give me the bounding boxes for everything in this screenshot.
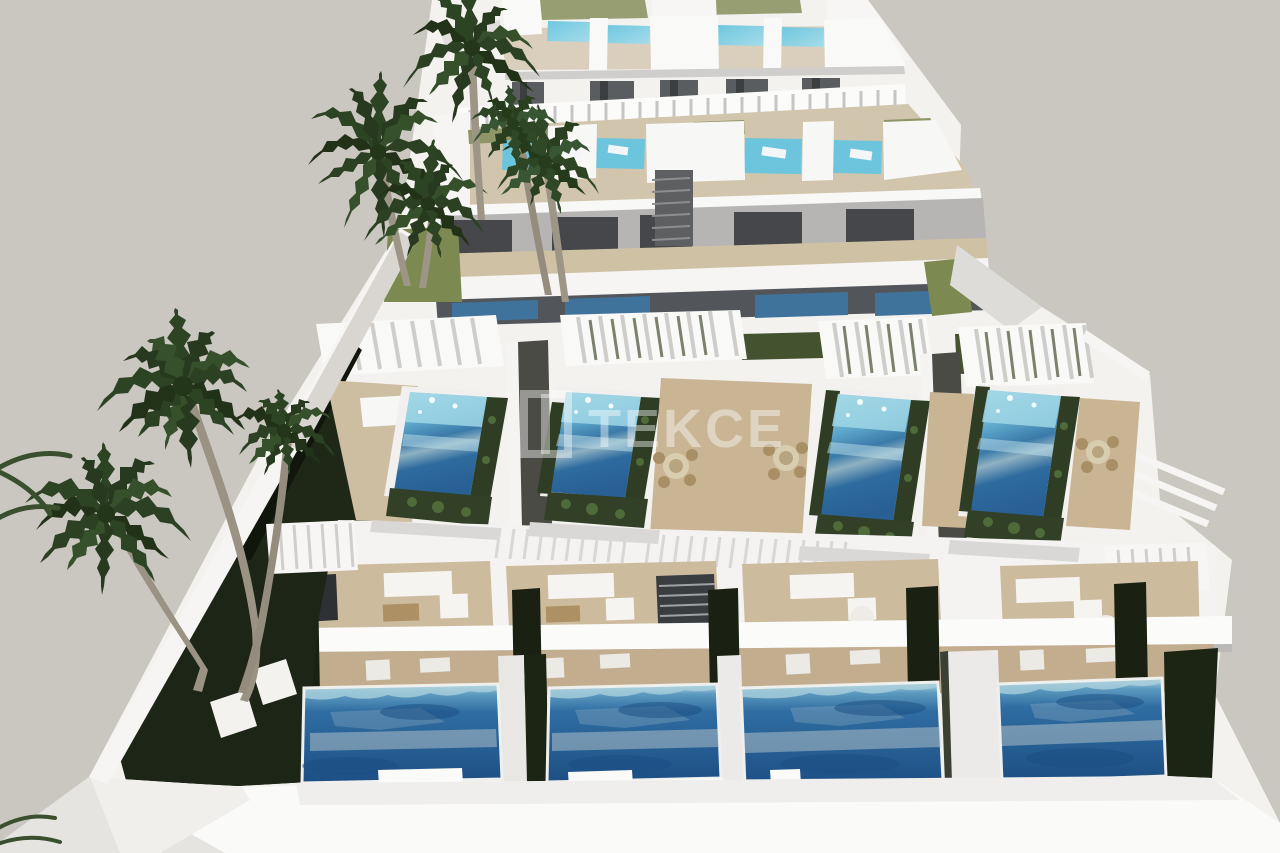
svg-text:TEKCE: TEKCE xyxy=(588,399,786,459)
